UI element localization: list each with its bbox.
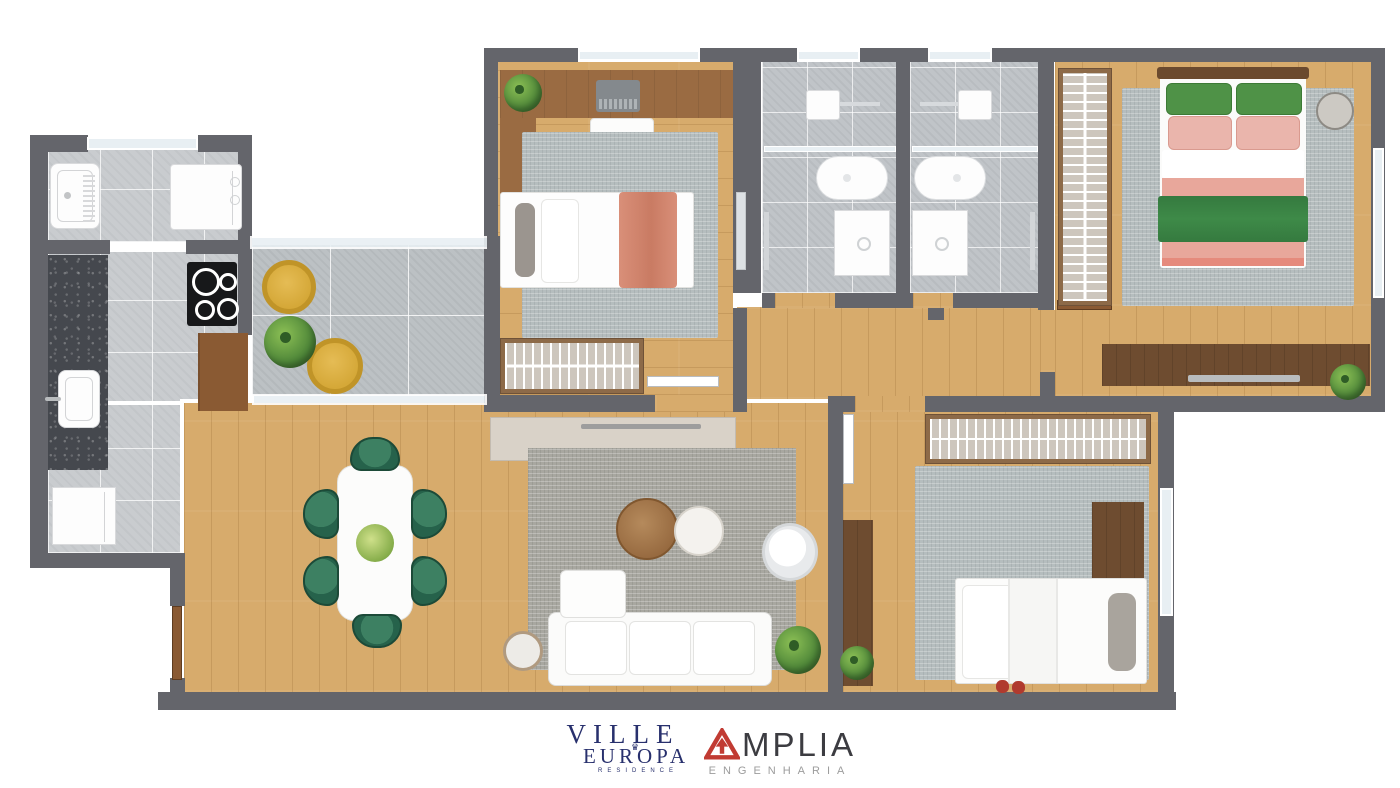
floor-plan-canvas: VILLE ♛ EUROPA RESIDENCE MPLIA ENGENHARI…	[0, 0, 1400, 788]
vanity-sink	[834, 210, 890, 276]
green-pillow	[1166, 83, 1232, 115]
granite-counter	[48, 255, 108, 470]
round-armchair	[762, 523, 818, 581]
pink-pillow	[1236, 116, 1300, 150]
sheet-fold	[1008, 579, 1058, 683]
wall	[733, 308, 747, 395]
tv	[1188, 375, 1300, 382]
sofa	[548, 612, 772, 686]
pink-pillow	[1168, 116, 1232, 150]
wall-top	[762, 48, 797, 62]
shower-head	[958, 90, 992, 120]
amplia-logo-name: MPLIA	[742, 730, 856, 760]
window-bathroom1	[797, 50, 860, 61]
crown-icon: ♛	[631, 737, 639, 757]
wall-mirror	[736, 192, 746, 270]
amplia-logo: MPLIA ENGENHARIA	[700, 728, 860, 777]
bedroom2-desk	[1092, 502, 1144, 584]
wall	[30, 553, 185, 568]
hallway-floor	[733, 307, 1040, 399]
wall	[1040, 372, 1055, 396]
blanket-edge	[1162, 258, 1304, 266]
bedroom2-door-leaf	[843, 414, 854, 484]
sofa-chaise	[560, 570, 626, 618]
tv	[581, 424, 701, 429]
slipper	[1012, 681, 1025, 694]
entry-door-leaf	[172, 606, 182, 680]
yellow-armchair	[262, 260, 316, 314]
wall-balcony-right	[487, 236, 500, 405]
slipper	[996, 680, 1009, 693]
coffee-table-white	[674, 506, 724, 556]
living-plant	[775, 626, 821, 674]
wall	[170, 553, 185, 606]
kitchen-sink	[58, 370, 100, 428]
wall	[828, 396, 855, 412]
master-bed	[1160, 70, 1306, 268]
ville-logo-tagline: RESIDENCE	[578, 768, 698, 774]
bedroom1-wardrobe	[500, 338, 644, 394]
wall-bathroom-divider	[896, 48, 910, 308]
washing-machine	[170, 164, 242, 230]
dining-chair	[350, 437, 400, 471]
gray-throw	[1108, 593, 1136, 671]
bedroom2-wardrobe	[925, 414, 1151, 464]
wall-master-top	[1045, 48, 1385, 62]
wall	[835, 293, 913, 308]
laundry-tub	[50, 163, 100, 229]
wall-kitchen-balcony	[238, 252, 252, 335]
toilet	[816, 156, 888, 200]
shower-arm	[840, 102, 880, 106]
wall-top	[484, 48, 578, 62]
wall-bathroom2-right	[1038, 48, 1054, 310]
wall-left-outer	[30, 135, 48, 568]
shower-glass	[764, 146, 896, 152]
amplia-triangle-icon	[704, 728, 740, 760]
master-wardrobe	[1058, 68, 1112, 306]
headboard	[1157, 67, 1309, 79]
bathroom1-door-gap	[775, 293, 835, 308]
balcony-railing-glass	[250, 236, 490, 249]
master-door-gap	[1040, 310, 1055, 372]
wall-stub	[928, 308, 944, 320]
master-plant	[1330, 364, 1366, 400]
window-service	[87, 137, 198, 150]
faucet	[45, 397, 61, 401]
wall-top	[860, 48, 928, 62]
green-throw	[1158, 196, 1308, 242]
wall	[30, 240, 110, 254]
fridge	[52, 487, 116, 545]
window-bedroom1	[578, 50, 700, 61]
pillow	[541, 199, 579, 283]
coffee-table-wood	[616, 498, 678, 560]
cooktop	[187, 262, 237, 326]
bedroom2-plant	[840, 646, 874, 680]
dining-table-plant	[356, 524, 394, 562]
ville-logo-line2: ♛ EUROPA	[574, 746, 698, 766]
window-bedroom2	[1160, 488, 1173, 616]
wall	[733, 395, 747, 412]
desk-plant	[504, 74, 542, 112]
side-table	[503, 631, 543, 671]
ville-logo-line1: VILLE	[548, 722, 698, 746]
bedroom2-door-gap	[855, 396, 925, 412]
kitchen-cabinet	[198, 333, 248, 411]
shower-arm	[920, 102, 958, 106]
wall	[762, 293, 775, 308]
towel-bar	[764, 212, 769, 270]
shower-glass	[912, 146, 1038, 152]
balcony-plant	[264, 316, 316, 368]
sheet-fold	[1162, 150, 1304, 178]
laptop	[596, 80, 640, 112]
round-side-table	[1316, 92, 1354, 130]
shower-head	[806, 90, 840, 120]
bedroom2-bed	[955, 578, 1147, 684]
wall-bedroom2-top	[925, 396, 1172, 412]
wall-bottom-outer	[158, 692, 1176, 710]
throw-blanket	[619, 192, 677, 288]
towel-bar	[1030, 212, 1035, 270]
bedroom1-door-gap	[655, 395, 733, 412]
green-pillow	[1236, 83, 1302, 115]
wall-bedroom2-left	[828, 396, 843, 692]
toilet	[914, 156, 986, 200]
bedroom1-bed	[500, 192, 694, 288]
vanity-sink	[912, 210, 968, 276]
window-master	[1373, 148, 1384, 298]
amplia-logo-subtitle: ENGENHARIA	[709, 765, 852, 777]
pillow	[962, 585, 1014, 679]
balcony-sliding-door	[252, 394, 487, 405]
window-bathroom2	[928, 50, 992, 61]
bathroom2-door-gap	[913, 293, 953, 308]
wall	[953, 293, 1052, 308]
bed-cushion	[515, 203, 535, 277]
wall-bedroom1-bottom	[484, 395, 655, 412]
ville-europa-logo: VILLE ♛ EUROPA RESIDENCE	[548, 722, 698, 774]
bedroom1-door-leaf	[647, 376, 719, 387]
